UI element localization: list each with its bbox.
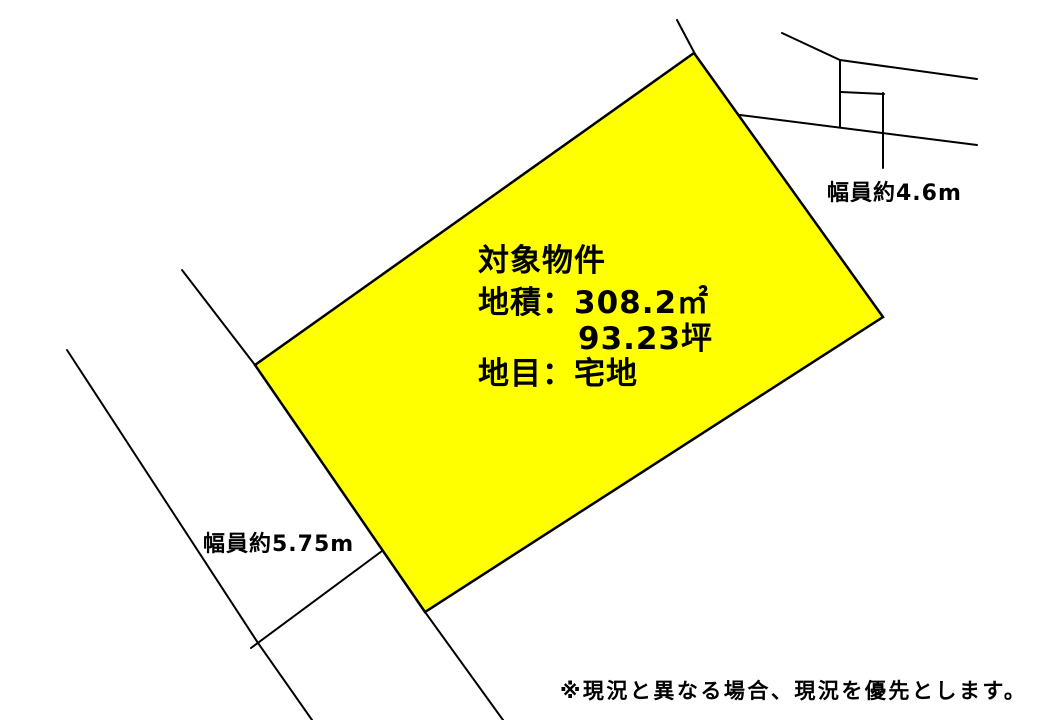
boundary-extension-line xyxy=(425,612,503,720)
boundary-line-top-vertex xyxy=(677,20,695,54)
site-plan-svg: 対象物件 地積：308.2㎡ 93.23坪 地目：宅地 幅員約4.6m 幅員約5… xyxy=(0,0,1040,720)
road-width-label-west: 幅員約5.75m xyxy=(203,531,354,557)
disclaimer-text: ※現況と異なる場合、現況を優先とします。 xyxy=(560,679,1027,703)
road-parcel-connector-line xyxy=(251,551,382,648)
property-parcel xyxy=(255,53,883,612)
property-title-label: 対象物件 xyxy=(478,243,606,279)
road-edge-west-right xyxy=(182,270,255,365)
road-edge-north-upper xyxy=(782,33,977,79)
road-width-label-north: 幅員約4.6m xyxy=(827,180,962,206)
land-area-label: 地積：308.2㎡ xyxy=(478,285,709,321)
land-plot-diagram: 対象物件 地積：308.2㎡ 93.23坪 地目：宅地 幅員約4.6m 幅員約5… xyxy=(0,0,1040,720)
tsubo-area-label: 93.23坪 xyxy=(578,321,713,357)
lot-boundary-tick-horizontal xyxy=(841,92,884,94)
road-edge-north-lower xyxy=(740,115,977,145)
land-category-label: 地目：宅地 xyxy=(478,356,638,392)
